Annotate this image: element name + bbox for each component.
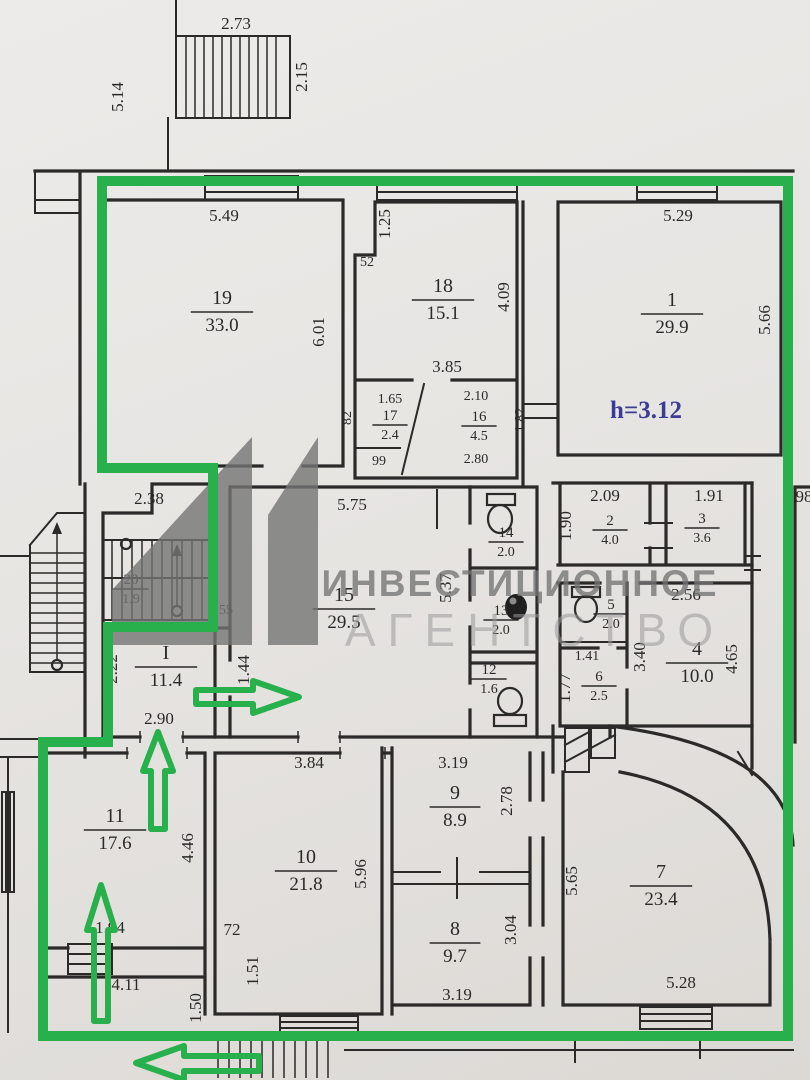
dimension-label: 1.77 bbox=[555, 673, 574, 703]
room-area: 17.6 bbox=[98, 833, 131, 854]
dimension-label: 72 bbox=[224, 920, 241, 939]
room-area: 9.7 bbox=[443, 946, 467, 967]
dimension-label: 6.01 bbox=[309, 317, 328, 347]
dimension-label: 5.75 bbox=[337, 495, 367, 514]
room-area: 10.0 bbox=[680, 666, 713, 687]
room-area: 23.4 bbox=[644, 889, 678, 910]
room-area: 3.6 bbox=[693, 531, 711, 546]
room-number: 7 bbox=[656, 861, 666, 883]
top-staircase-treads bbox=[186, 36, 276, 118]
dimension-label: 2.78 bbox=[497, 786, 516, 816]
dimension-label: 82 bbox=[340, 411, 355, 425]
dimension-label: 1.82 bbox=[513, 408, 528, 433]
dimension-label: 52 bbox=[360, 255, 374, 270]
room-number: 9 bbox=[450, 782, 460, 804]
toilet-12-bowl-icon bbox=[498, 688, 522, 714]
room-area: 29.9 bbox=[655, 317, 688, 338]
room-18-walls bbox=[355, 202, 523, 484]
toilet-14-tank bbox=[487, 494, 515, 505]
dimension-label: 4.11 bbox=[111, 975, 140, 994]
dimension-label: 1.91 bbox=[694, 486, 724, 505]
room-area: 4.5 bbox=[470, 429, 488, 444]
dimension-label: 3.04 bbox=[501, 915, 520, 945]
room-area: 2.0 bbox=[497, 545, 515, 560]
dimension-label: 5.49 bbox=[209, 206, 239, 225]
room-area: 33.0 bbox=[205, 315, 238, 336]
left-stair-arrowhead bbox=[52, 522, 62, 534]
dimension-label: 3.19 bbox=[438, 753, 468, 772]
dimension-label: 2.90 bbox=[144, 709, 174, 728]
dimension-label: 1.65 bbox=[378, 392, 403, 407]
dimension-label: 4.46 bbox=[178, 833, 197, 863]
agency-logo-bar bbox=[268, 437, 318, 645]
watermark-line1: ИНВЕСТИЦИОННОЕ bbox=[321, 563, 718, 604]
dimension-label: 2.15 bbox=[292, 62, 311, 92]
walls-layer bbox=[0, 0, 810, 1062]
vestibule-hatch bbox=[565, 728, 615, 772]
floor-plan-svg: 2.732.155.145.496.011.25524.093.855.295.… bbox=[0, 0, 810, 1080]
room-area: 4.0 bbox=[601, 533, 619, 548]
room-area: 8.9 bbox=[443, 810, 467, 831]
dimension-label: 5.14 bbox=[108, 82, 127, 112]
room-number: 17 bbox=[383, 408, 399, 424]
dimension-label: 2.73 bbox=[221, 14, 251, 33]
dimension-label: 98 bbox=[796, 487, 810, 506]
room-number: 12 bbox=[482, 662, 497, 678]
dimension-label: 1.25 bbox=[375, 209, 394, 239]
room-number: 6 bbox=[595, 669, 603, 685]
room-number: 2 bbox=[606, 513, 614, 529]
dimension-label: 3.19 bbox=[442, 985, 472, 1004]
arrow-up-icon bbox=[143, 732, 173, 829]
room-number: 19 bbox=[212, 287, 232, 309]
room-number: 18 bbox=[433, 275, 453, 297]
dimension-label: 5.65 bbox=[562, 866, 581, 896]
left-stair-circle bbox=[52, 660, 62, 670]
dimension-label: 1.50 bbox=[186, 993, 205, 1023]
room-number: 3 bbox=[698, 511, 706, 527]
room-number: 11 bbox=[105, 805, 124, 827]
room-area: 15.1 bbox=[426, 303, 459, 324]
room-area: 11.4 bbox=[150, 670, 183, 691]
dimension-label: 4.09 bbox=[494, 282, 513, 312]
dimension-label: 3.85 bbox=[432, 357, 462, 376]
dimension-label: 2.09 bbox=[590, 486, 620, 505]
dimension-label: 5.96 bbox=[351, 859, 370, 889]
room-number: 10 bbox=[296, 846, 316, 868]
dimension-label: 5.28 bbox=[666, 973, 696, 992]
dimension-label: 2.38 bbox=[134, 489, 164, 508]
watermark-line2: АГЕНТСТВО bbox=[345, 604, 725, 656]
room-number: 8 bbox=[450, 918, 460, 940]
room-area: 21.8 bbox=[289, 874, 322, 895]
floorplan-photo: 2.732.155.145.496.011.25524.093.855.295.… bbox=[0, 0, 810, 1080]
dimension-label: 99 bbox=[372, 454, 386, 469]
room-area: 1.6 bbox=[480, 682, 498, 697]
room-number: I bbox=[163, 642, 170, 664]
room-area: 2.4 bbox=[381, 428, 399, 443]
dimension-label: 5.29 bbox=[663, 206, 693, 225]
top-staircase bbox=[176, 36, 290, 118]
dimension-label: 1.51 bbox=[243, 956, 262, 986]
room-number: 1 bbox=[667, 289, 677, 311]
dimension-label: 5.66 bbox=[755, 305, 774, 335]
dimension-label: 2.80 bbox=[464, 452, 489, 467]
room-number: 16 bbox=[472, 409, 488, 425]
dimension-label: 1.90 bbox=[556, 511, 575, 541]
window-room-7 bbox=[640, 1007, 712, 1029]
toilet-12-tank bbox=[494, 715, 526, 726]
room-area: 2.5 bbox=[590, 689, 608, 704]
dimension-label: 2.10 bbox=[464, 389, 489, 404]
dimension-label: 3.84 bbox=[294, 753, 324, 772]
room-number: 14 bbox=[499, 525, 515, 541]
height-note: h=3.12 bbox=[610, 397, 682, 424]
